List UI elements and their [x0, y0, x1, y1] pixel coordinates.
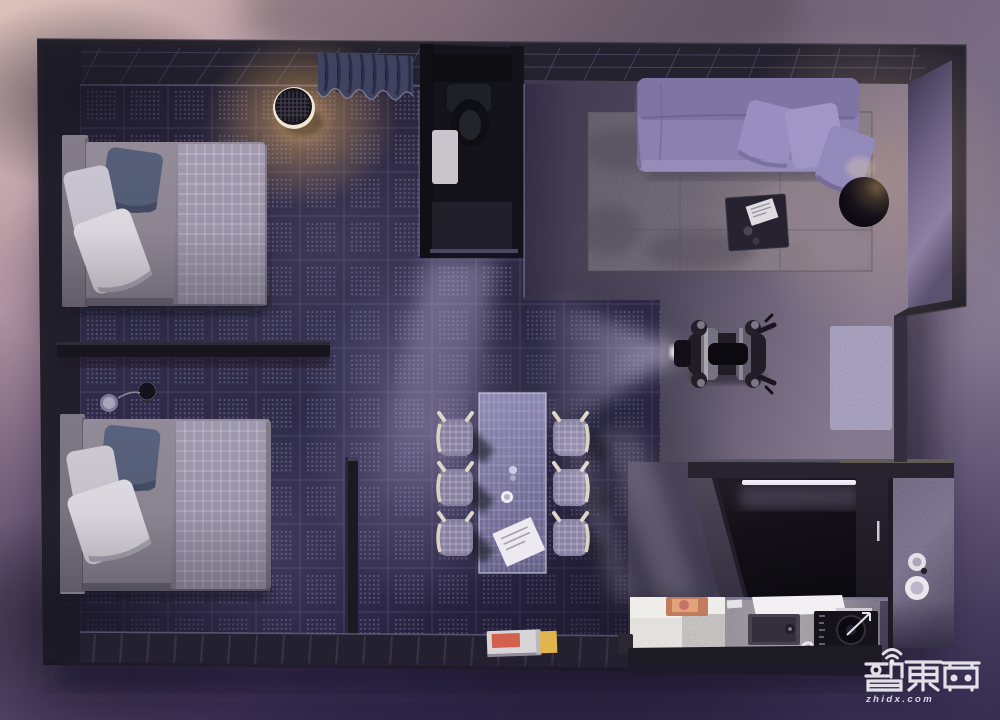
svg-text:zhidx.com: zhidx.com — [865, 694, 934, 705]
